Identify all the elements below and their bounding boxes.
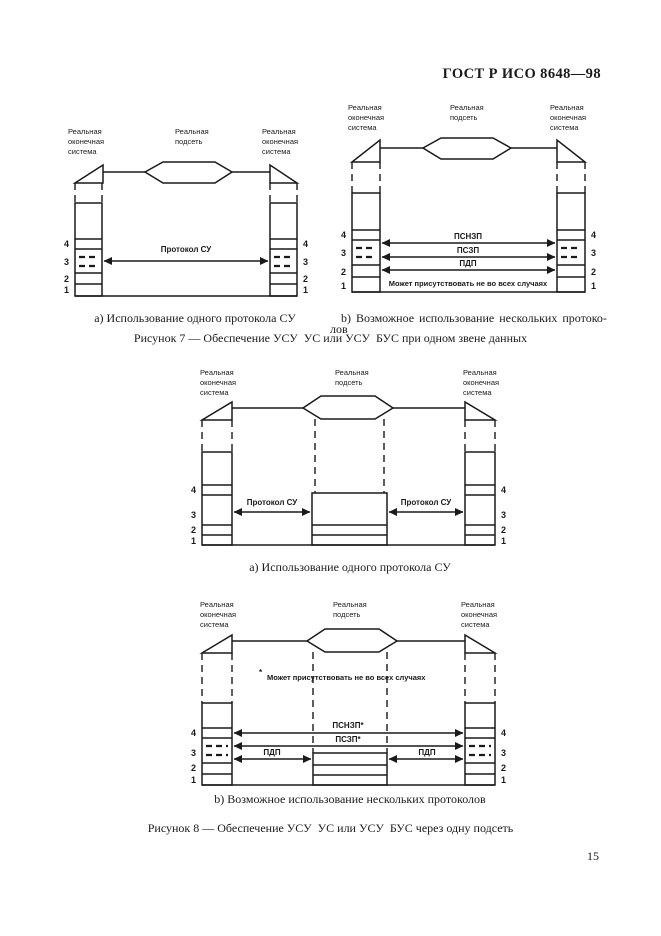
left-end-system-flag-icon [202, 402, 232, 452]
svg-text:1: 1 [501, 536, 506, 546]
svg-text:3: 3 [191, 510, 196, 520]
svg-text:1: 1 [501, 775, 506, 785]
svg-text:4: 4 [501, 728, 506, 738]
left-end-system-label: Реальная оконечная система [200, 368, 238, 397]
svg-text:2: 2 [303, 274, 308, 284]
svg-text:4: 4 [501, 485, 506, 495]
svg-text:2: 2 [591, 267, 596, 277]
pdp-right-arrow-label: ПДП [418, 748, 435, 757]
right-end-system-tower [465, 452, 495, 545]
layer-numbers-right: 4 3 2 1 [501, 485, 506, 546]
svg-text:2: 2 [64, 274, 69, 284]
svg-text:2: 2 [191, 763, 196, 773]
subnet-hexagon [232, 396, 465, 493]
subnet-relay-node [312, 493, 387, 545]
svg-text:3: 3 [501, 510, 506, 520]
right-end-system-flag-icon [465, 635, 495, 703]
protocol-su-right-arrow-label: Протокол СУ [401, 498, 453, 507]
svg-text:1: 1 [191, 775, 196, 785]
protocol-su-left-arrow-label: Протокол СУ [247, 498, 299, 507]
layer-numbers-left: 4 3 2 1 [341, 230, 346, 291]
pszp-arrow-label: ПСЗП [457, 246, 479, 255]
left-end-system-flag-icon [202, 635, 232, 703]
svg-text:2: 2 [191, 525, 196, 535]
document-header: ГОСТ Р ИСО 8648—98 [443, 66, 601, 83]
right-end-system-tower [557, 193, 585, 292]
svg-text:4: 4 [64, 239, 69, 249]
layer-numbers-left: 4 3 2 1 [64, 239, 69, 295]
layer-numbers-left: 4 3 2 1 [191, 485, 196, 546]
svg-text:3: 3 [591, 248, 596, 258]
figure7a-caption: a) Использование одного протокола СУ [55, 311, 335, 326]
left-end-system-flag-icon [75, 165, 103, 203]
figure8a-diagram: Реальная оконечная система Реальная подс… [185, 360, 515, 560]
figure8b-diagram: Реальная оконечная система Реальная подс… [185, 595, 515, 810]
left-end-system-tower [202, 703, 232, 785]
svg-text:1: 1 [64, 285, 69, 295]
layer-numbers-right: 4 3 2 1 [591, 230, 596, 291]
presence-note: Может присутствовать не во всех случаях [267, 673, 426, 682]
subnet-label: Реальная подсеть [450, 103, 486, 122]
right-end-system-flag-icon [465, 402, 495, 452]
left-end-system-tower [352, 193, 380, 292]
psnzp-arrow-label: ПСНЗП [454, 232, 482, 241]
right-end-system-tower [465, 703, 495, 785]
svg-text:3: 3 [303, 257, 308, 267]
svg-text:1: 1 [341, 281, 346, 291]
left-end-system-tower [75, 203, 102, 296]
figure7-caption: Рисунок 7 — Обеспечение УСУ УС или УСУ Б… [0, 331, 661, 346]
subnet-label: Реальная подсеть [335, 368, 371, 387]
svg-text:2: 2 [501, 763, 506, 773]
pszp-arrow-label: ПСЗП* [335, 735, 361, 744]
svg-text:1: 1 [591, 281, 596, 291]
svg-text:1: 1 [303, 285, 308, 295]
right-end-system-flag-icon [557, 140, 585, 193]
figure7a-diagram: Реальная оконечная система Реальная подс… [55, 118, 335, 308]
svg-text:1: 1 [191, 536, 196, 546]
subnet-hexagon [380, 138, 557, 159]
svg-text:3: 3 [64, 257, 69, 267]
svg-text:4: 4 [591, 230, 596, 240]
pdp-left-arrow-label: ПДП [263, 748, 280, 757]
left-end-system-flag-icon [352, 140, 380, 193]
svg-text:4: 4 [341, 230, 346, 240]
subnet-relay-node [313, 753, 387, 785]
right-end-system-tower [270, 203, 297, 296]
svg-text:3: 3 [501, 748, 506, 758]
svg-text:2: 2 [341, 267, 346, 277]
subnet-label: Реальная подсеть [175, 127, 211, 146]
right-end-system-label: Реальная оконечная система [461, 600, 499, 629]
left-end-system-label: Реальная оконечная система [348, 103, 386, 132]
presence-note-star: * [259, 668, 263, 677]
subnet-hexagon [103, 162, 270, 183]
left-end-system-tower [202, 452, 232, 545]
figure8a-caption: a) Использование одного протокола СУ [185, 560, 515, 575]
protocol-su-arrow-label: Протокол СУ [161, 245, 213, 254]
presence-note: Может присутствовать не во всех случаях [389, 279, 548, 288]
page-number: 15 [587, 849, 599, 864]
left-end-system-label: Реальная оконечная система [200, 600, 238, 629]
right-end-system-label: Реальная оконечная система [262, 127, 300, 156]
left-end-system-label: Реальная оконечная система [68, 127, 106, 156]
svg-text:4: 4 [303, 239, 308, 249]
subnet-label: Реальная подсеть [333, 600, 369, 619]
layer-numbers-left: 4 3 2 1 [191, 728, 196, 785]
figure7b-caption-line1: b) Возможное использование нескольких пр… [341, 311, 607, 326]
svg-text:4: 4 [191, 485, 196, 495]
pdp-arrow-label: ПДП [459, 259, 476, 268]
layer-numbers-right: 4 3 2 1 [303, 239, 308, 295]
document-page: ГОСТ Р ИСО 8648—98 Реальная оконечная си… [0, 0, 661, 936]
svg-text:2: 2 [501, 525, 506, 535]
right-end-system-flag-icon [270, 165, 297, 203]
layer-numbers-right: 4 3 2 1 [501, 728, 506, 785]
svg-text:4: 4 [191, 728, 196, 738]
svg-text:3: 3 [341, 248, 346, 258]
figure8b-caption: b) Возможное использование нескольких пр… [185, 792, 515, 807]
figure7b-diagram: Реальная оконечная система Реальная подс… [335, 100, 615, 300]
right-end-system-label: Реальная оконечная система [463, 368, 501, 397]
svg-text:3: 3 [191, 748, 196, 758]
right-end-system-label: Реальная оконечная система [550, 103, 588, 132]
figure8-caption: Рисунок 8 — Обеспечение УСУ УС или УСУ Б… [0, 821, 661, 836]
psnzp-arrow-label: ПСНЗП* [332, 721, 364, 730]
